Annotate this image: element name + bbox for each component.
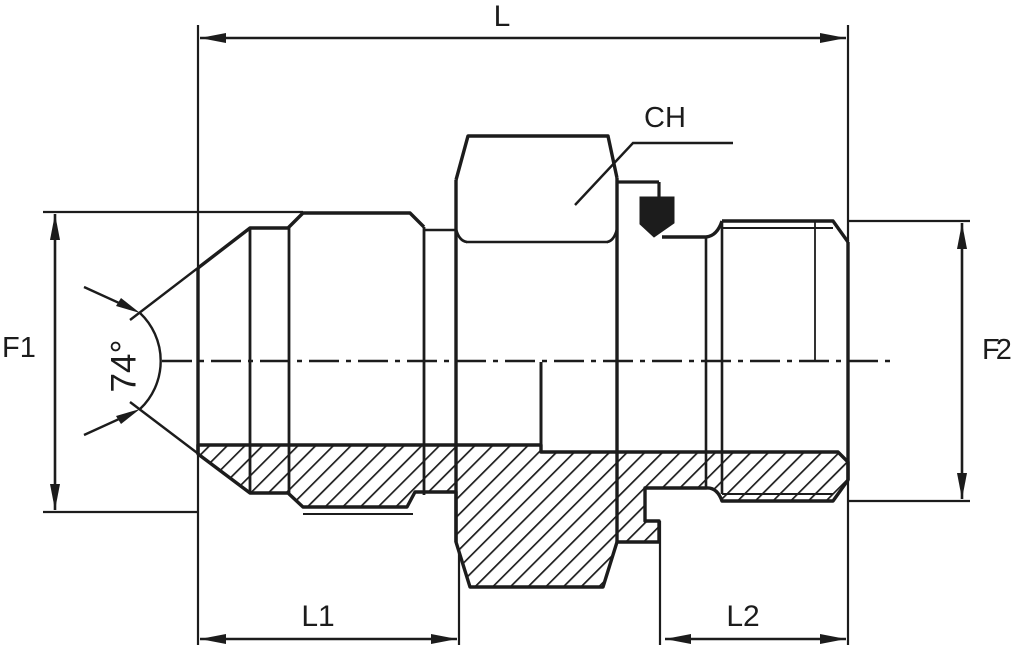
label-cone-angle: 74°	[105, 340, 144, 393]
leader-line	[575, 143, 733, 205]
arrow-top	[50, 214, 60, 240]
label-hex-wrench: CH	[644, 102, 686, 134]
label-left-thread-diameter: F1	[2, 332, 36, 364]
arrow-left	[200, 634, 226, 644]
label-left-length: L1	[301, 600, 334, 633]
label-right-length: L2	[726, 600, 759, 633]
arrow-bottom	[50, 484, 60, 510]
label-right-thread-diameter: F2	[982, 334, 1011, 366]
label-overall-length: L	[494, 0, 511, 33]
arrow-left	[665, 634, 691, 644]
fitting-drawing-svg: L F1 F2 74° CH L1	[0, 0, 1032, 645]
arrow-upper	[116, 298, 140, 313]
arrow-top	[957, 223, 967, 249]
seal-solid-detail	[640, 197, 674, 237]
arrow-right	[431, 634, 457, 644]
cone-ext-upper	[130, 228, 250, 320]
arrow-right	[820, 33, 846, 43]
arrow-lower	[116, 409, 140, 424]
technical-drawing-page: L F1 F2 74° CH L1	[0, 0, 1032, 645]
arrow-left	[200, 33, 226, 43]
arrow-bottom	[957, 473, 967, 499]
arrow-right	[820, 634, 846, 644]
section-hatched-body	[198, 445, 848, 587]
dimension-right-length: L2	[660, 521, 846, 645]
callout-hex-wrench: CH	[575, 102, 733, 205]
dimension-left-length: L1	[200, 553, 459, 645]
hex-top-outline	[456, 136, 617, 180]
right-thread-crest-top	[722, 221, 848, 242]
